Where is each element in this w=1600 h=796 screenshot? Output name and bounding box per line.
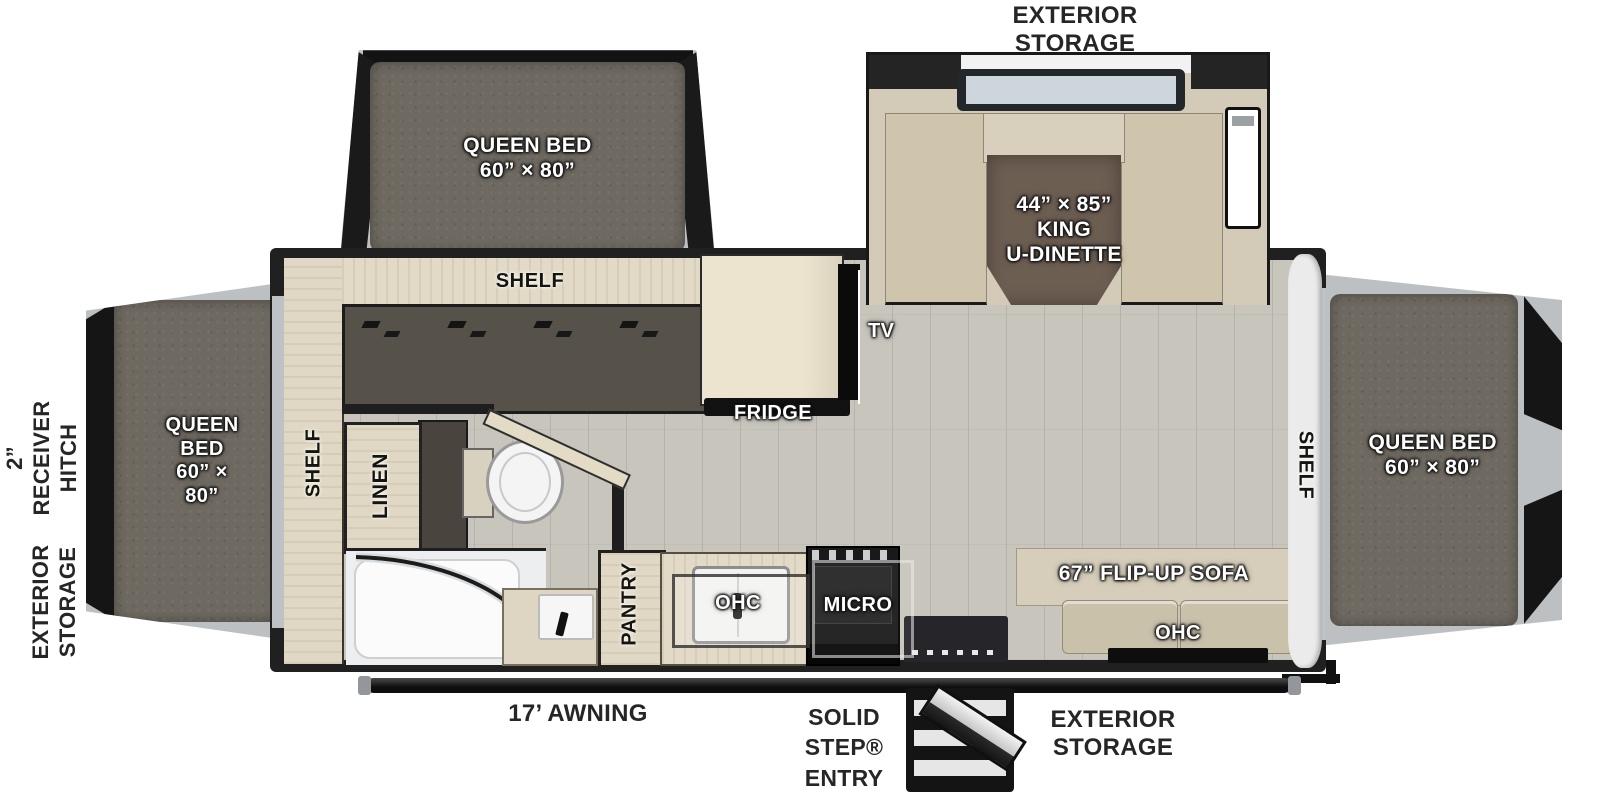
- right-shelf-label: SHELF: [1294, 431, 1317, 500]
- toilet-seat-ring: [499, 452, 551, 512]
- kitchen-ohc-label: OHC: [672, 592, 804, 616]
- dinette-label: 44” × 85” KING U-DINETTE: [1006, 193, 1122, 267]
- awning-bar: [366, 678, 1292, 693]
- left-bed-label: QUEEN BED 60” × 80”: [160, 414, 244, 508]
- top-shelf-label: SHELF: [430, 270, 630, 293]
- rv-floorplan: EXTERIOR STORAGE QUEEN BED 60” × 80” 44”…: [0, 0, 1600, 796]
- fridge-cabinet: [700, 254, 844, 406]
- label-receiver-hitch: 2” RECEIVER HITCH: [2, 401, 82, 516]
- dinette-slide-corner-left: [869, 55, 961, 89]
- right-bed-canvas-bottom: [1524, 490, 1562, 624]
- dinette-window: [1225, 107, 1261, 229]
- dinette-bench-right: [1121, 113, 1223, 305]
- sofa-label: 67” FLIP-UP SOFA: [1016, 562, 1292, 587]
- skylight-glass: [966, 76, 1176, 104]
- dinette-bench-left: [885, 113, 987, 305]
- front-bunk-slide: QUEEN BED 60” × 80”: [340, 46, 715, 256]
- pantry-label: PANTRY: [619, 562, 642, 646]
- tv-label: TV: [868, 320, 894, 344]
- bath-vanity: [502, 588, 598, 666]
- label-exterior-storage-bottom: EXTERIOR STORAGE: [1013, 706, 1213, 762]
- linen-label: LINEN: [369, 453, 393, 519]
- entry-step-well: [904, 616, 1008, 662]
- label-awning: 17’ AWNING: [458, 700, 698, 728]
- awning-cap-right: [1288, 676, 1301, 695]
- left-bed-slide: QUEEN BED 60” × 80”: [86, 282, 286, 640]
- skylight-frame: [957, 69, 1185, 111]
- front-bunk-label: QUEEN BED 60” × 80”: [463, 135, 591, 185]
- label-exterior-storage-top: EXTERIOR STORAGE: [955, 2, 1195, 58]
- wardrobe-hangers: [361, 321, 691, 328]
- dinette-window-shade: [1232, 116, 1254, 126]
- tv-indicator-line: [858, 270, 860, 404]
- bath-wall-top: [342, 404, 494, 414]
- right-bed-canvas-top: [1524, 296, 1562, 430]
- sofa-flip-table: [1108, 648, 1268, 663]
- awning-cap-left: [358, 676, 371, 695]
- tv-panel: [838, 264, 860, 400]
- dinette-slide: 44” × 85” KING U-DINETTE: [866, 52, 1270, 305]
- dinette-slide-corner-right: [1191, 55, 1267, 89]
- wardrobe: [342, 304, 710, 414]
- label-exterior-storage-left: EXTERIOR STORAGE: [28, 545, 82, 660]
- micro-label: MICRO: [806, 594, 910, 618]
- sofa-ohc-label: OHC: [1118, 622, 1238, 646]
- right-bed-label: QUEEN BED 60” × 80”: [1368, 432, 1496, 482]
- left-shelf-label: SHELF: [303, 429, 326, 498]
- rear-bumper-end: [1326, 660, 1336, 684]
- wardrobe-hangers-2: [383, 331, 668, 337]
- label-entry: SOLID STEP® ENTRY: [782, 702, 906, 793]
- fridge-label: FRIDGE: [700, 402, 846, 426]
- right-bed-slide: QUEEN BED 60” × 80”: [1318, 274, 1562, 646]
- range-knobs: [812, 550, 894, 560]
- entry-step-treadmarks: [912, 650, 1000, 655]
- bath-closet-dark: [418, 420, 468, 552]
